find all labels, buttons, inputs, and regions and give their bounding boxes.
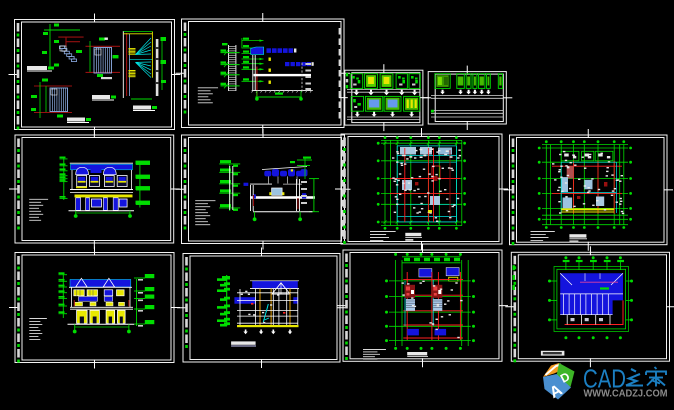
svg-text:WWW.CADZJ.COM: WWW.CADZJ.COM <box>584 389 668 400</box>
